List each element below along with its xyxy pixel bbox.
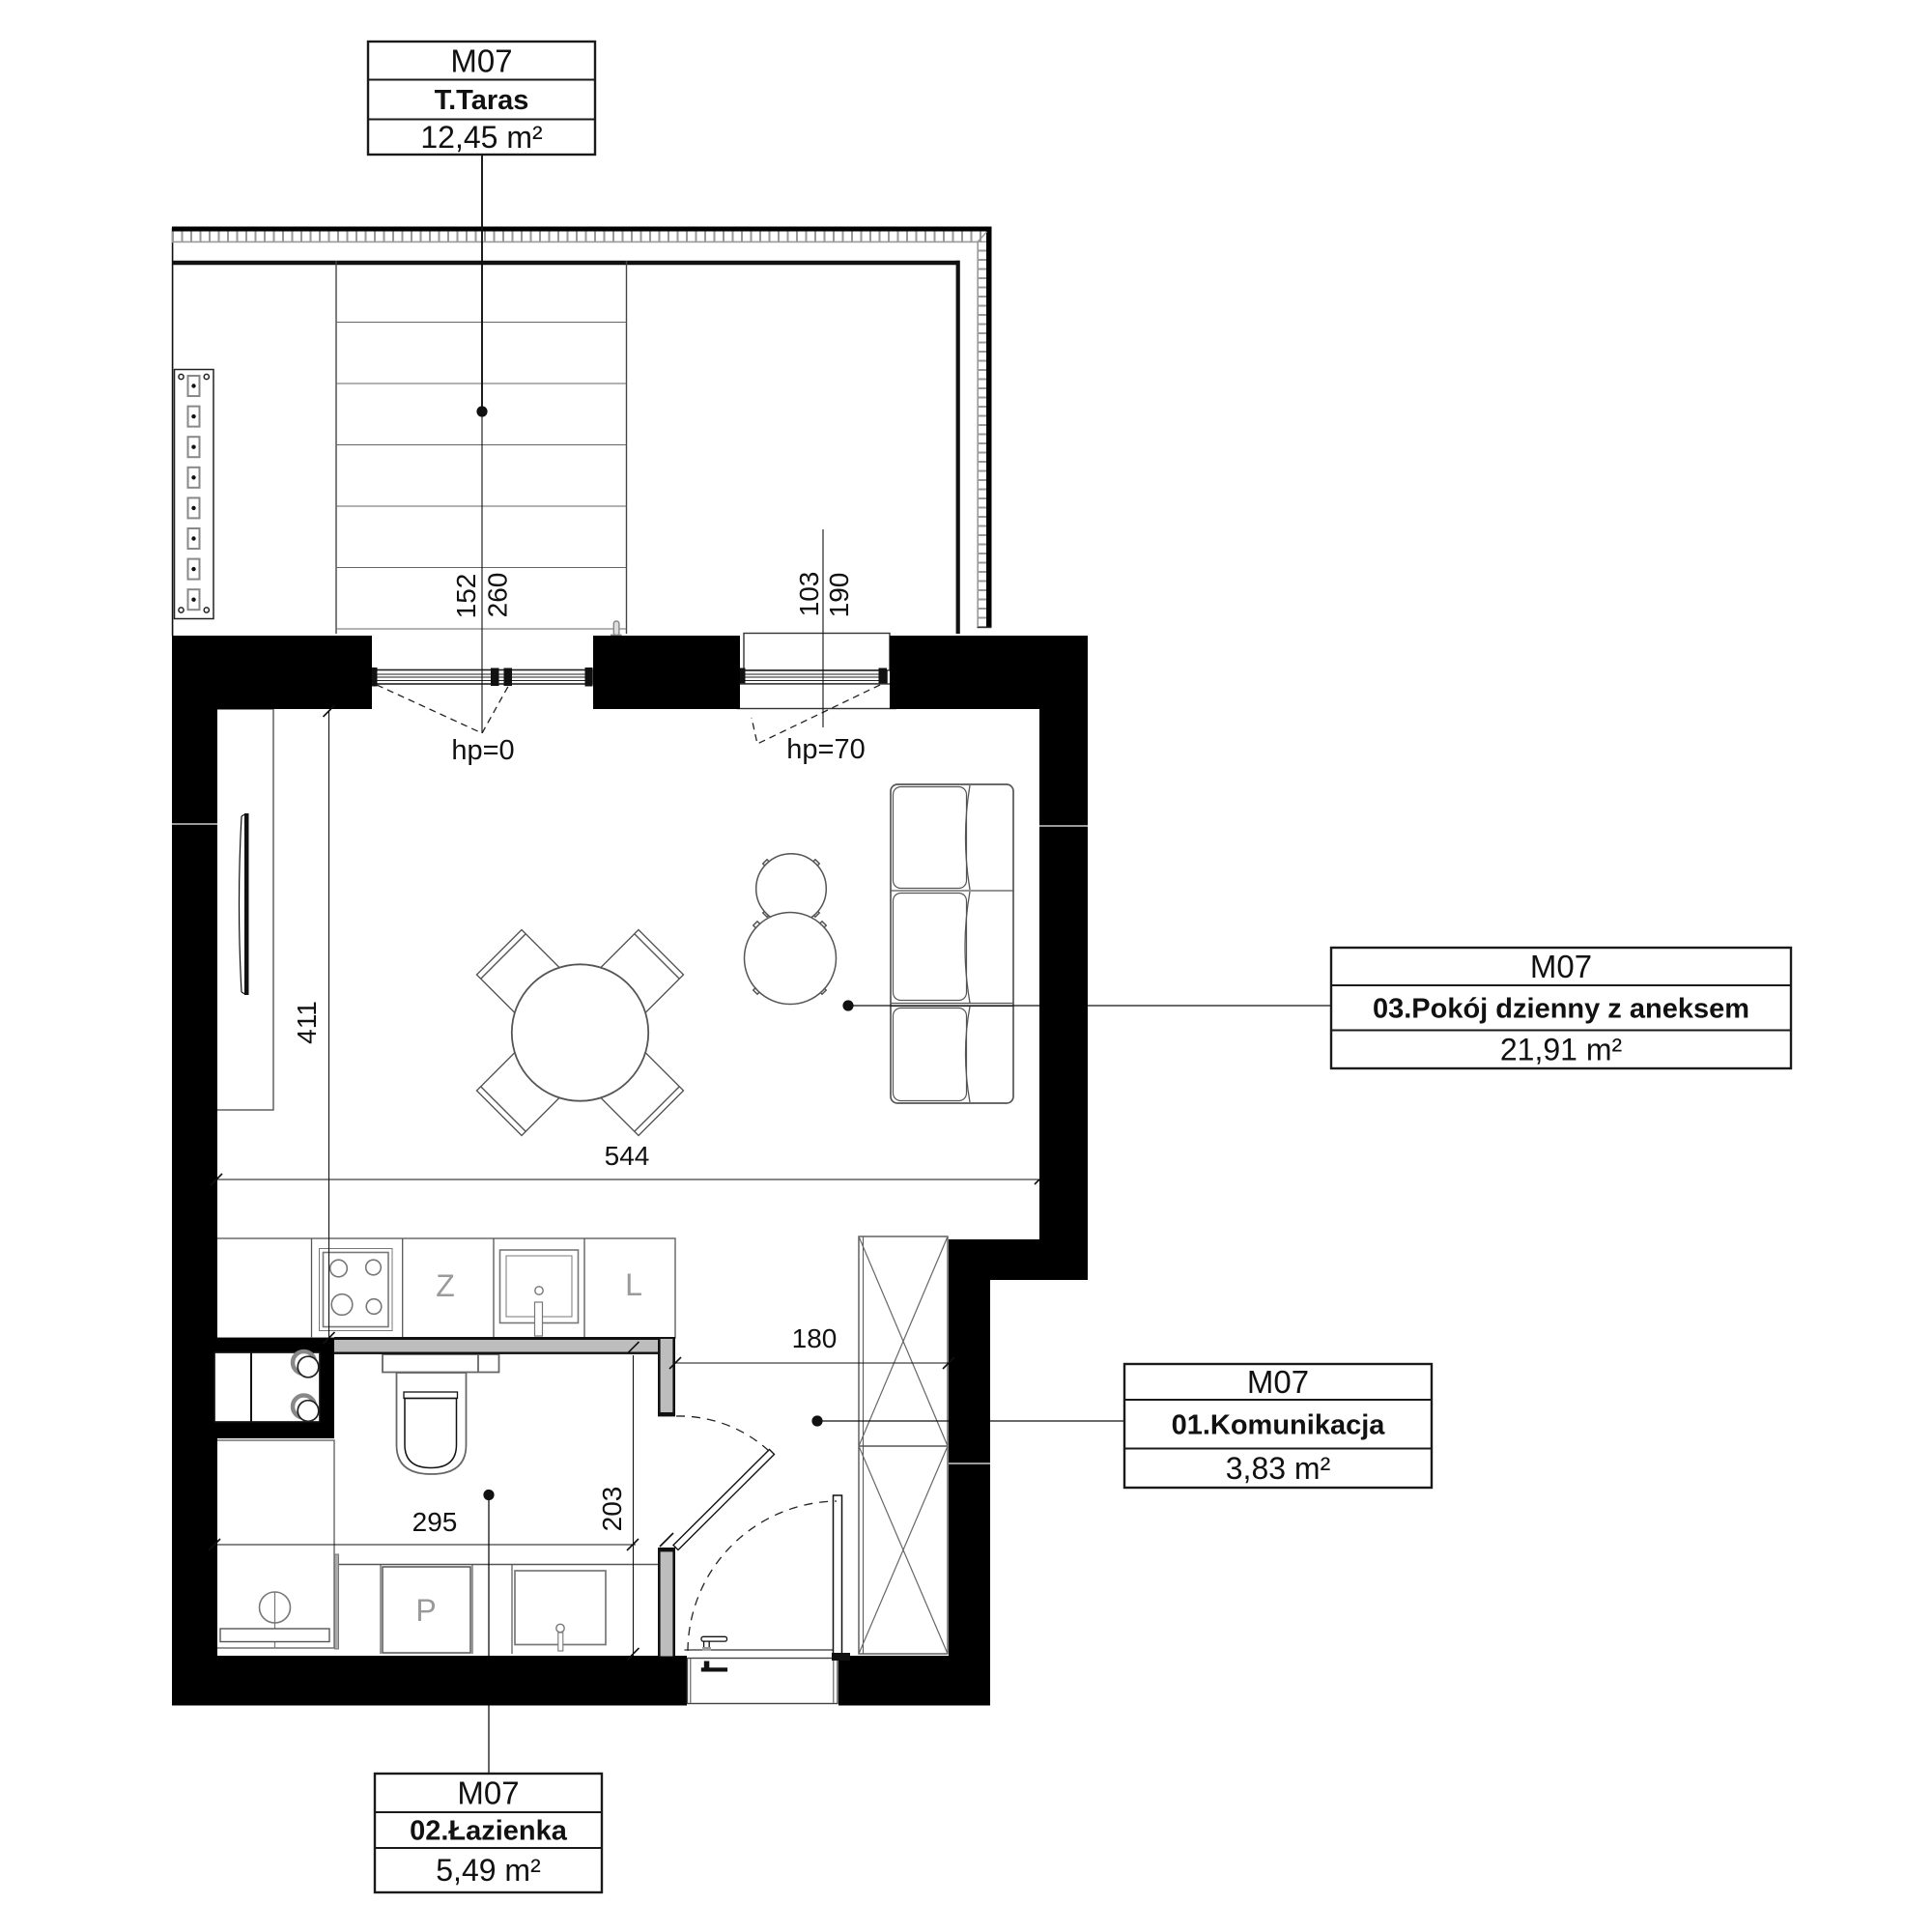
svg-text:260: 260 [483,573,513,618]
svg-text:T.Taras: T.Taras [435,85,529,116]
svg-text:152: 152 [451,574,481,619]
svg-text:Z: Z [436,1268,455,1303]
svg-text:12,45 m²: 12,45 m² [420,120,543,155]
svg-text:411: 411 [292,1001,322,1044]
svg-text:02.Łazienka: 02.Łazienka [410,1816,568,1847]
svg-text:01.Komunikacja: 01.Komunikacja [1172,1410,1386,1441]
svg-text:3,83 m²: 3,83 m² [1226,1451,1331,1486]
svg-text:295: 295 [412,1507,458,1537]
svg-text:M07: M07 [1247,1364,1309,1400]
svg-text:03.Pokój dzienny z aneksem: 03.Pokój dzienny z aneksem [1373,994,1749,1025]
svg-text:103: 103 [794,572,824,617]
svg-text:L: L [625,1267,642,1302]
svg-text:5,49 m²: 5,49 m² [436,1853,541,1888]
svg-text:203: 203 [597,1487,627,1532]
svg-text:P: P [415,1593,436,1628]
svg-text:180: 180 [792,1323,838,1353]
svg-text:hp=70: hp=70 [786,734,865,765]
svg-text:M07: M07 [457,1776,519,1811]
svg-text:M07: M07 [1530,949,1592,984]
svg-text:190: 190 [824,573,854,618]
svg-text:M07: M07 [450,43,512,79]
svg-text:hp=0: hp=0 [451,735,514,766]
svg-text:21,91 m²: 21,91 m² [1500,1033,1623,1067]
svg-text:544: 544 [605,1141,650,1171]
